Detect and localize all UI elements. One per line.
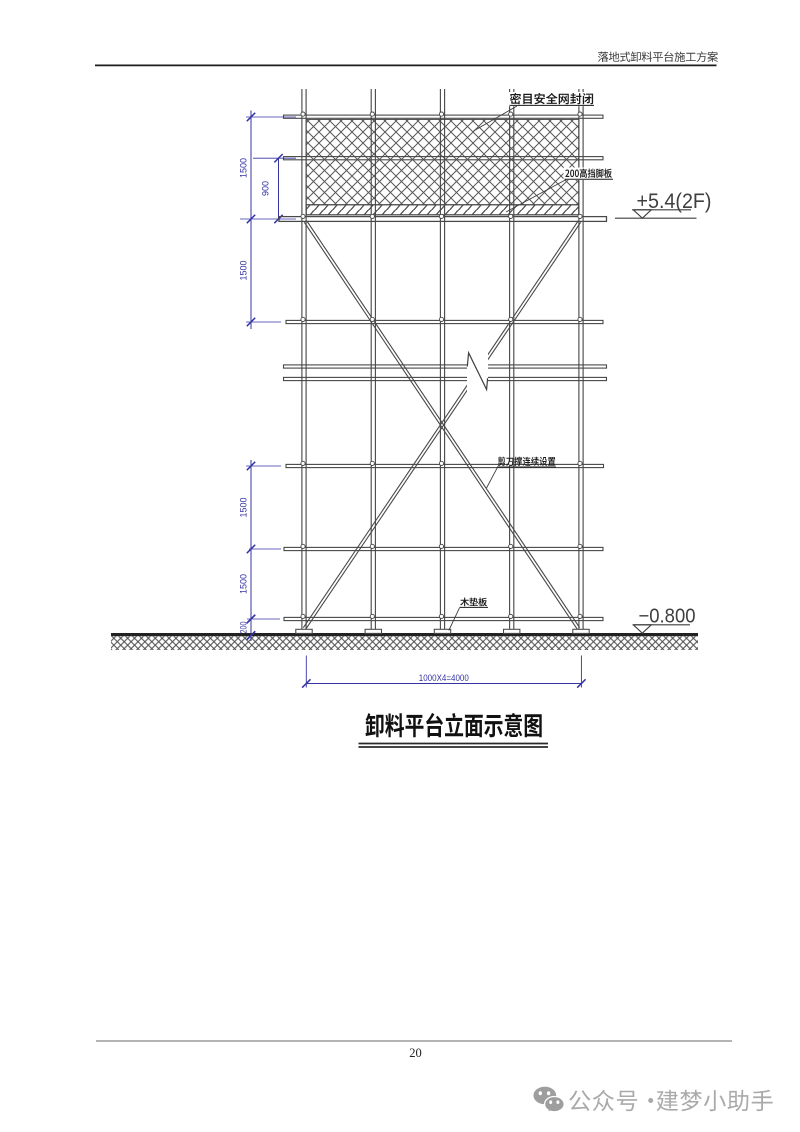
svg-text:1500: 1500 [239,261,249,281]
svg-text:1500: 1500 [239,574,249,594]
svg-text:−0.800: −0.800 [639,605,696,627]
svg-text:1500: 1500 [239,158,249,178]
svg-text:20: 20 [409,1046,422,1060]
svg-text:1500: 1500 [239,498,249,518]
svg-text:1000X4=4000: 1000X4=4000 [419,673,469,684]
svg-text:900: 900 [261,181,271,196]
